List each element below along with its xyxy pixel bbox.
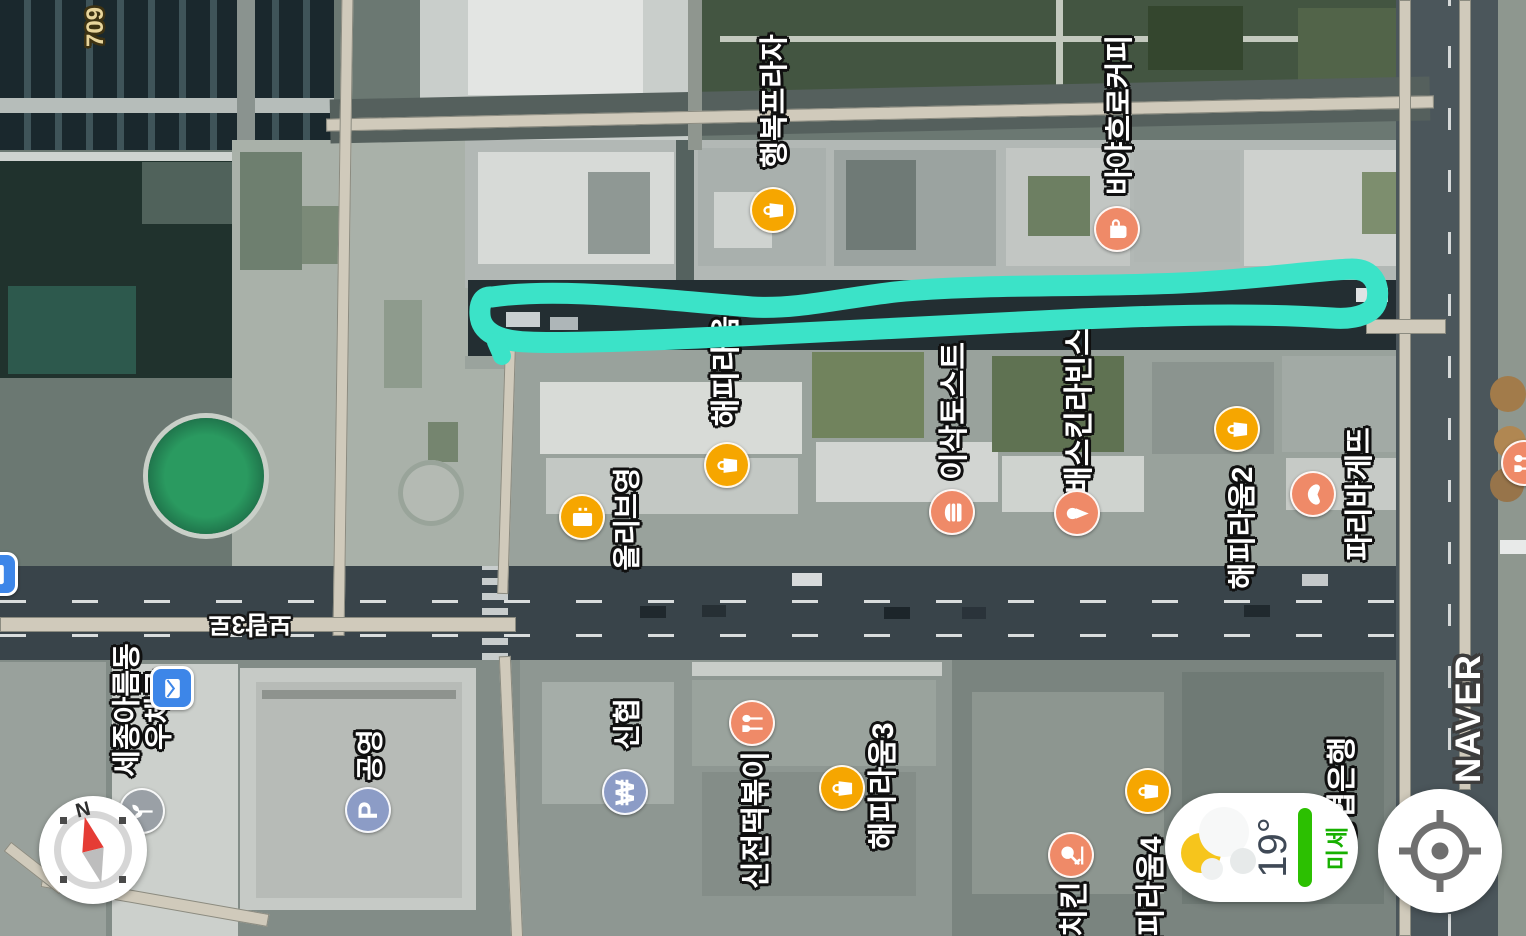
satellite-patch (240, 152, 302, 270)
poi-label[interactable]: 신협 (611, 698, 642, 750)
bag-icon (1135, 778, 1162, 805)
partly-cloudy-icon (1178, 806, 1260, 888)
satellite-patch (148, 418, 264, 534)
road-overlay (1366, 319, 1446, 334)
satellite-patch (550, 317, 578, 330)
mail-icon (0, 561, 10, 588)
satellite-patch (640, 606, 666, 618)
satellite-patch (398, 460, 464, 526)
poi-label[interactable]: 파리바게뜨 (1344, 427, 1376, 560)
poi-marker[interactable] (704, 442, 750, 488)
compass-needle-north (74, 814, 104, 852)
satellite-patch (384, 300, 422, 388)
poi-marker[interactable] (1048, 832, 1094, 878)
bag-icon (1224, 416, 1251, 443)
poi-label[interactable]: 세종아름동 우체국 (112, 643, 177, 776)
poi-marker[interactable]: P (345, 787, 391, 833)
bread-icon (1300, 481, 1327, 508)
air-quality-readout: 미세 (1312, 793, 1358, 902)
poi-label[interactable]: 공영 (354, 729, 385, 781)
satellite-patch (676, 140, 694, 288)
road-name-label: 보람3로 (209, 608, 292, 644)
poi-label[interactable]: 이삭토스트 (938, 342, 972, 480)
temperature-readout: 19° (1249, 793, 1297, 902)
poi-label[interactable]: 치킨 (1058, 881, 1092, 936)
store-icon (569, 504, 596, 531)
satellite-patch (1244, 605, 1270, 617)
poi-marker[interactable] (929, 489, 975, 535)
satellite-patch (0, 0, 334, 150)
poi-label[interactable]: 바야흐로커피 (1104, 35, 1136, 195)
poi-marker[interactable] (819, 765, 865, 811)
satellite-patch (1356, 288, 1388, 302)
poi-marker[interactable] (1054, 490, 1100, 536)
poi-marker[interactable] (750, 187, 796, 233)
satellite-patch (1134, 150, 1240, 262)
satellite-patch (428, 422, 458, 462)
satellite-patch (1298, 8, 1403, 80)
poi-marker[interactable]: ₩ (602, 769, 648, 815)
fork-spoon-icon (739, 710, 766, 737)
satellite-patch (0, 98, 334, 113)
poi-label[interactable]: 올리브영 (611, 467, 642, 570)
satellite-patch (884, 607, 910, 619)
bag-icon (829, 775, 856, 802)
compass-needle-south (82, 847, 112, 885)
crosshair-icon (1394, 805, 1486, 897)
temperature-value: 19° (1251, 817, 1296, 878)
poi-label[interactable]: 신전떡볶이 (740, 751, 774, 889)
satellite-patch (302, 206, 342, 264)
road-overlay (1399, 0, 1411, 936)
satellite-patch (0, 600, 1526, 603)
satellite-patch (1302, 574, 1328, 586)
poi-marker[interactable] (1290, 471, 1336, 517)
satellite-patch (142, 162, 234, 224)
satellite-patch (702, 605, 726, 617)
satellite-patch (540, 382, 802, 454)
satellite-patch (1490, 376, 1526, 412)
satellite-patch (792, 573, 822, 586)
satellite-patch (1148, 6, 1243, 70)
poi-marker[interactable] (1125, 768, 1171, 814)
poi-label[interactable]: 해피라움4 (1135, 836, 1169, 936)
naver-watermark: NAVER (1449, 653, 1489, 783)
icecream-icon (1064, 500, 1091, 527)
poi-label[interactable]: 해피라움 (710, 316, 744, 426)
satellite-patch (962, 607, 986, 619)
cup-icon (1104, 216, 1131, 243)
poi-label[interactable]: 해피라움2 (1227, 467, 1259, 590)
poi-marker[interactable] (150, 666, 194, 710)
satellite-patch (992, 356, 1124, 452)
poi-marker[interactable] (0, 552, 18, 596)
satellite-patch (1500, 540, 1526, 554)
poi-label[interactable]: 해피라움3 (867, 722, 901, 849)
bag-icon (760, 197, 787, 224)
poi-marker[interactable] (1214, 406, 1260, 452)
poi-label[interactable]: 행복프라자 (759, 34, 791, 167)
weather-widget[interactable]: 19° 미세 (1165, 793, 1358, 902)
poi-marker[interactable] (729, 700, 775, 746)
map-canvas[interactable]: 행복프라자바야흐로커피해피라움이삭토스트배스킨라빈스해피라움2파리바게뜨올리브영… (0, 0, 1526, 936)
satellite-patch (468, 280, 1404, 358)
parking-icon: P (355, 797, 382, 824)
satellite-patch (506, 312, 540, 327)
satellite-patch (237, 0, 255, 150)
satellite-patch (812, 352, 924, 438)
won-icon: ₩ (612, 779, 639, 806)
fork-spoon-icon (1511, 450, 1526, 477)
compass-control[interactable]: N (39, 796, 147, 904)
mail-icon (159, 675, 186, 702)
route-number-label: 709 (82, 7, 110, 47)
satellite-patch (1056, 0, 1063, 93)
bag-icon (714, 452, 741, 479)
burger-icon (939, 499, 966, 526)
satellite-patch (846, 160, 916, 250)
air-quality-bar (1298, 808, 1312, 887)
satellite-patch (588, 172, 650, 254)
air-quality-label: 미세 (1318, 825, 1352, 869)
satellite-patch (692, 662, 942, 676)
current-location-button[interactable] (1378, 789, 1502, 913)
satellite-patch (0, 152, 238, 161)
poi-label[interactable]: 배스킨라빈스 (1063, 328, 1097, 494)
satellite-patch (688, 0, 702, 150)
satellite-patch (468, 0, 643, 95)
poi-marker[interactable] (1094, 206, 1140, 252)
cloud-icon (1201, 858, 1223, 880)
satellite-patch (1028, 176, 1090, 236)
poi-marker[interactable] (559, 494, 605, 540)
satellite-patch (8, 286, 136, 374)
chicken-icon (1058, 842, 1085, 869)
satellite-patch (262, 690, 456, 699)
